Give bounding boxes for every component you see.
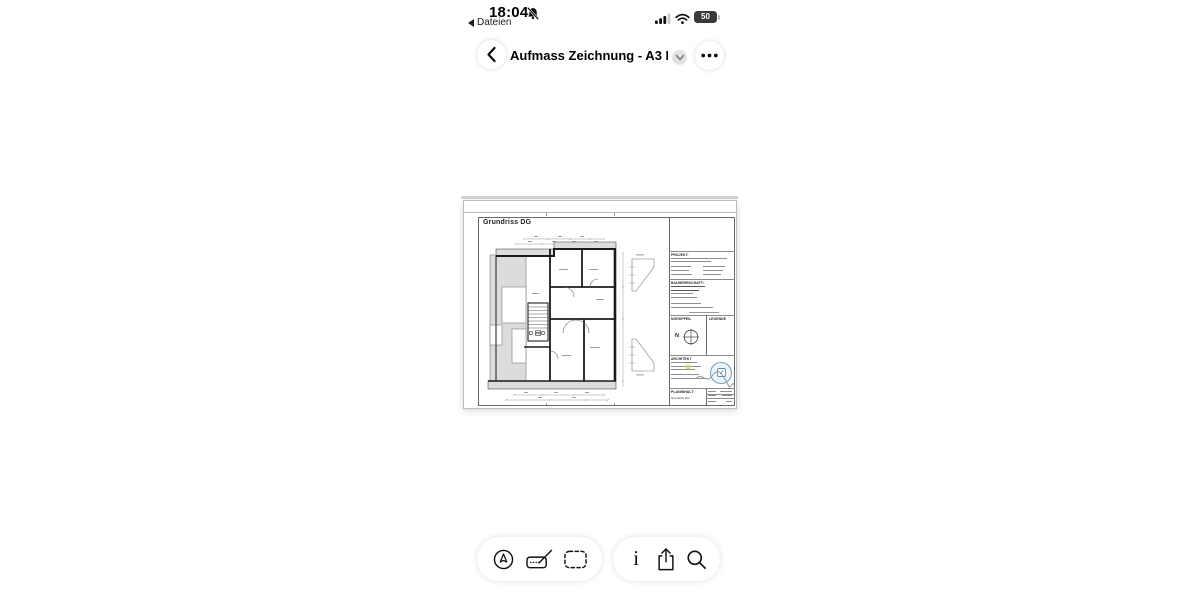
- fold-mark: [614, 213, 615, 216]
- north-letter: N: [675, 333, 679, 339]
- slope-profile-bottom: [629, 339, 654, 371]
- ellipsis-icon: [701, 53, 718, 58]
- titleblock-text-line: [726, 401, 732, 402]
- markup-toolbar: [477, 537, 602, 581]
- titleblock-text-line: [671, 274, 692, 275]
- titleblock-text-line: [703, 266, 725, 267]
- titleblock-text-line: [703, 270, 723, 271]
- battery-icon: 50: [694, 11, 717, 23]
- titleblock-divider: [706, 388, 707, 406]
- title-menu-button[interactable]: [672, 50, 687, 65]
- chevron-down-icon: [675, 53, 685, 62]
- north-arrow-icon: [683, 329, 699, 350]
- titleblock-text-line: [671, 290, 699, 291]
- slope-profile-top: [629, 259, 654, 291]
- titleblock-divider: [706, 315, 707, 355]
- highlight-mark: [686, 365, 690, 369]
- titleblock-planinhalt-label: PLANINHALT: [671, 390, 693, 394]
- titleblock-text-line: [722, 395, 732, 396]
- back-to-app-icon: [468, 19, 474, 27]
- info-button[interactable]: i: [621, 542, 651, 576]
- titleblock-text-line: [671, 286, 705, 287]
- share-icon: [655, 546, 677, 573]
- titleblock-text-line: [671, 369, 695, 370]
- search-icon: [685, 548, 708, 571]
- titleblock-plan-name: Grundriss DG: [671, 396, 689, 400]
- titleblock-text-line: [671, 261, 711, 262]
- signature-field-icon: [525, 547, 554, 572]
- titleblock-text-line: [708, 391, 716, 392]
- info-icon: i: [633, 548, 639, 571]
- drawing-title: Grundriss DG: [483, 219, 531, 226]
- titleblock-text-line: [671, 270, 689, 271]
- document-page[interactable]: Grundriss DG: [463, 200, 737, 409]
- more-button[interactable]: [695, 41, 724, 70]
- titleblock-nordpfeil-label: NORDPFEIL: [671, 317, 692, 321]
- titleblock-text-line: [671, 297, 697, 298]
- floorplan-drawing: [486, 229, 666, 405]
- titleblock-text-line: [708, 395, 716, 396]
- titleblock-text-line: [703, 274, 721, 275]
- battery-nub: [718, 15, 720, 20]
- titleblock-architekt-label: ARCHITEKT: [671, 357, 692, 361]
- wifi-icon: [675, 11, 690, 29]
- search-button[interactable]: [682, 542, 712, 576]
- crop-select-button[interactable]: [561, 542, 591, 576]
- back-to-app-label: Dateien: [477, 17, 511, 28]
- titleblock-rule: [706, 398, 735, 399]
- bell-slash-icon: [527, 7, 539, 25]
- actions-toolbar: i: [613, 537, 720, 581]
- back-to-app-breadcrumb[interactable]: Dateien: [468, 17, 511, 28]
- titleblock-text-line: [708, 401, 716, 402]
- screen: 18:04 Dateien: [0, 0, 1200, 600]
- titleblock-text-line: [689, 312, 719, 313]
- back-button[interactable]: [477, 40, 506, 69]
- cellular-signal-icon: [655, 11, 672, 29]
- titleblock-bauherrschaft-label: BAUHERRSCHAFT:: [671, 281, 704, 285]
- titleblock-text-line: [671, 293, 693, 294]
- titleblock-text-line: [671, 266, 691, 267]
- share-button[interactable]: [651, 542, 681, 576]
- fold-line: [464, 212, 736, 213]
- titleblock-projekt-label: PROJEKT:: [671, 253, 689, 257]
- fold-mark: [546, 213, 547, 216]
- document-title: Aufmass Zeichnung - A3 F...: [510, 48, 668, 63]
- titleblock-text-line: [720, 391, 732, 392]
- chevron-left-icon: [486, 46, 497, 63]
- selection-rectangle-icon: [562, 548, 589, 571]
- markup-button[interactable]: [488, 542, 518, 576]
- markup-pen-icon: [491, 547, 516, 572]
- signature-button[interactable]: [524, 542, 554, 576]
- titleblock-text-line: [671, 258, 727, 259]
- previous-page-edge: [461, 196, 738, 199]
- titleblock-legende-label: LEGENDE: [709, 317, 726, 321]
- titleblock-text-line: [671, 303, 701, 304]
- phone-content: 18:04 Dateien: [461, 0, 738, 600]
- titleblock-rule: [669, 388, 735, 389]
- titleblock-text-line: [671, 307, 713, 308]
- titleblock-divider: [669, 217, 670, 406]
